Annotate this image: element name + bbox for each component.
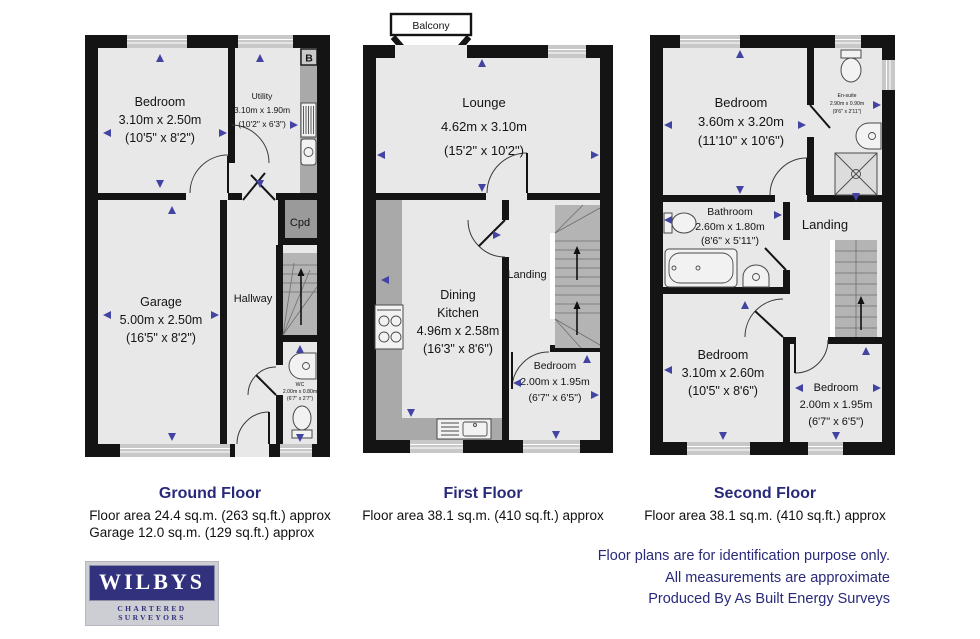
floor-title: First Floor (362, 485, 604, 503)
room-dim-m: 2.60m x 1.80m (695, 221, 765, 233)
room-dim-m: 3.10m x 2.50m (119, 113, 202, 127)
room-label-dining: Dining (440, 288, 475, 302)
room-label-garage: Garage (140, 295, 182, 309)
room-label-utility: Utility (252, 91, 274, 101)
room-label-bedroom: Bedroom (534, 360, 577, 372)
ensuite-sink-icon (856, 123, 881, 149)
floor-area-line: Floor area 38.1 sq.m. (410 sq.ft.) appro… (362, 507, 604, 524)
ground-floor-caption: Ground Floor Floor area 24.4 sq.m. (263 … (89, 485, 331, 542)
bathroom-toilet-icon (664, 213, 696, 233)
ground-floor-plan: Bedroom 3.10m x 2.50m (10'5" x 8'2") Uti… (80, 25, 335, 475)
disclaimer-line: Floor plans are for identification purpo… (598, 546, 890, 568)
room-dim-m: 4.96m x 2.58m (417, 324, 500, 338)
bath-icon (665, 249, 737, 287)
disclaimer-line: Produced By As Built Energy Surveys (598, 589, 890, 611)
room-dim-ft: (6'7" x 2'7") (287, 396, 313, 402)
staircase (283, 253, 317, 335)
wc-sink-icon (289, 353, 316, 379)
disclaimer-line: All measurements are approximate (598, 568, 890, 590)
hob-icon (375, 305, 403, 349)
room-dim-ft: (11'10" x 10'6") (698, 133, 784, 148)
room-dim-m: 2.90m x 0.90m (830, 101, 864, 107)
room-dim-m: 5.00m x 2.50m (120, 313, 203, 327)
room-dim-ft: (10'5" x 8'6") (688, 384, 758, 398)
balcony-label: Balcony (412, 20, 450, 32)
room-label-bedroom: Bedroom (814, 382, 859, 394)
room-label-bedroom: Bedroom (715, 95, 768, 110)
room-dim-ft: (15'2" x 10'2") (444, 143, 524, 158)
room-dim-ft: (10'2" x 6'3") (238, 119, 286, 129)
floorplan-sheet: Bedroom 3.10m x 2.50m (10'5" x 8'2") Uti… (0, 0, 980, 639)
room-dim-m: 3.10m x 1.90m (234, 105, 290, 115)
room-dim-m: 4.62m x 3.10m (441, 119, 527, 134)
boiler-label: B (305, 53, 313, 65)
ensuite-toilet-icon (841, 50, 861, 82)
wilbys-logo: WILBYS CHARTERED SURVEYORS (85, 561, 219, 626)
staircase (830, 240, 877, 337)
disclaimer-notes: Floor plans are for identification purpo… (598, 546, 890, 611)
first-floor-plan: Lounge 4.62m x 3.10m (15'2" x 10'2") Bal… (355, 5, 620, 475)
room-label-landing: Landing (802, 217, 848, 232)
room-label-bedroom: Bedroom (135, 95, 186, 109)
room-dim-m: 3.60m x 3.20m (698, 114, 784, 129)
floor-area-line: Floor area 24.4 sq.m. (263 sq.ft.) appro… (89, 507, 331, 524)
room-dim-ft: (6'7" x 6'5") (529, 392, 582, 404)
room-label-ensuite: En-suite (837, 93, 856, 99)
logo-wordmark: WILBYS (89, 565, 215, 601)
kitchen-sink-icon (437, 419, 491, 439)
room-dim-ft: (6'7" x 6'5") (808, 416, 863, 428)
shower-icon (835, 153, 877, 195)
room-label-hallway: Hallway (234, 293, 273, 305)
utility-sink-icon (301, 139, 316, 165)
room-dim-ft: (8'6" x 5'11") (701, 235, 759, 247)
room-dim-m: 3.10m x 2.60m (682, 366, 765, 380)
wc-toilet-icon (292, 406, 312, 438)
room-label-kitchen: Kitchen (437, 306, 479, 320)
room-label-wc: WC (296, 382, 305, 388)
second-floor-caption: Second Floor Floor area 38.1 sq.m. (410 … (644, 485, 886, 525)
room-label-bedroom: Bedroom (698, 348, 749, 362)
floor-title: Ground Floor (89, 485, 331, 503)
radiator-icon (301, 103, 316, 137)
first-floor-caption: First Floor Floor area 38.1 sq.m. (410 s… (362, 485, 604, 525)
second-floor-plan: Bedroom 3.60m x 3.20m (11'10" x 10'6") E… (645, 25, 900, 470)
room-label-lounge: Lounge (462, 95, 505, 110)
floor-area-line: Floor area 38.1 sq.m. (410 sq.ft.) appro… (644, 507, 886, 524)
floor-title: Second Floor (644, 485, 886, 503)
staircase (550, 205, 600, 348)
floor-area-line: Garage 12.0 sq.m. (129 sq.ft.) approx (89, 524, 331, 541)
room-label-landing: Landing (507, 269, 546, 281)
bathroom-sink-icon (743, 265, 769, 287)
room-dim-ft: (16'3" x 8'6") (423, 342, 493, 356)
room-dim-ft: (10'5" x 8'2") (125, 131, 195, 145)
room-dim-ft: (9'6" x 2'11") (833, 109, 862, 115)
room-dim-m: 2.00m x 0.80m (283, 389, 317, 395)
room-dim-m: 2.00m x 1.95m (800, 399, 873, 411)
room-label-cupboard: Cpd (290, 217, 310, 229)
logo-tagline: CHARTERED SURVEYORS (89, 601, 215, 622)
room-label-bathroom: Bathroom (707, 206, 753, 218)
room-dim-ft: (16'5" x 8'2") (126, 331, 196, 345)
room-dim-m: 2.00m x 1.95m (520, 376, 590, 388)
